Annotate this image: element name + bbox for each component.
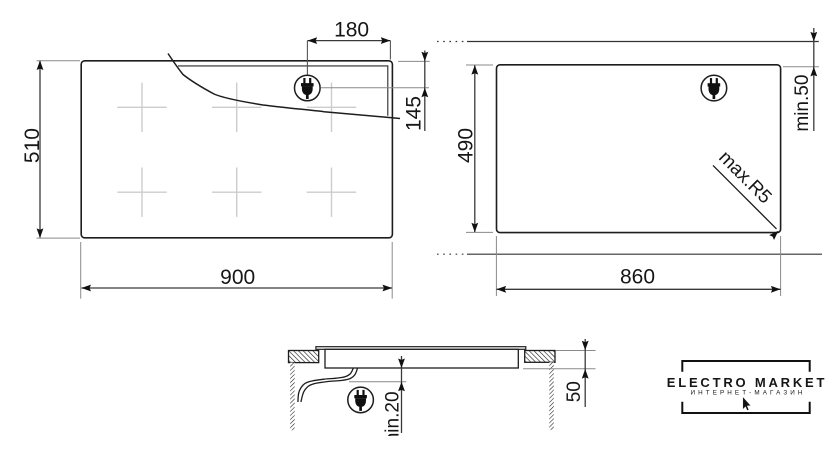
svg-text:50: 50 — [564, 381, 585, 402]
svg-text:min.50: min.50 — [792, 75, 813, 132]
svg-text:510: 510 — [21, 128, 44, 163]
svg-text:180: 180 — [334, 19, 369, 42]
svg-text:860: 860 — [620, 266, 655, 289]
svg-text:145: 145 — [402, 96, 425, 131]
svg-text:ИНТЕРНЕТ-МАГАЗИН: ИНТЕРНЕТ-МАГАЗИН — [690, 390, 805, 397]
svg-text:min.20: min.20 — [382, 391, 403, 448]
svg-text:490: 490 — [454, 128, 477, 163]
svg-text:ELECTRO MARKET: ELECTRO MARKET — [667, 375, 828, 390]
svg-text:900: 900 — [220, 266, 255, 289]
